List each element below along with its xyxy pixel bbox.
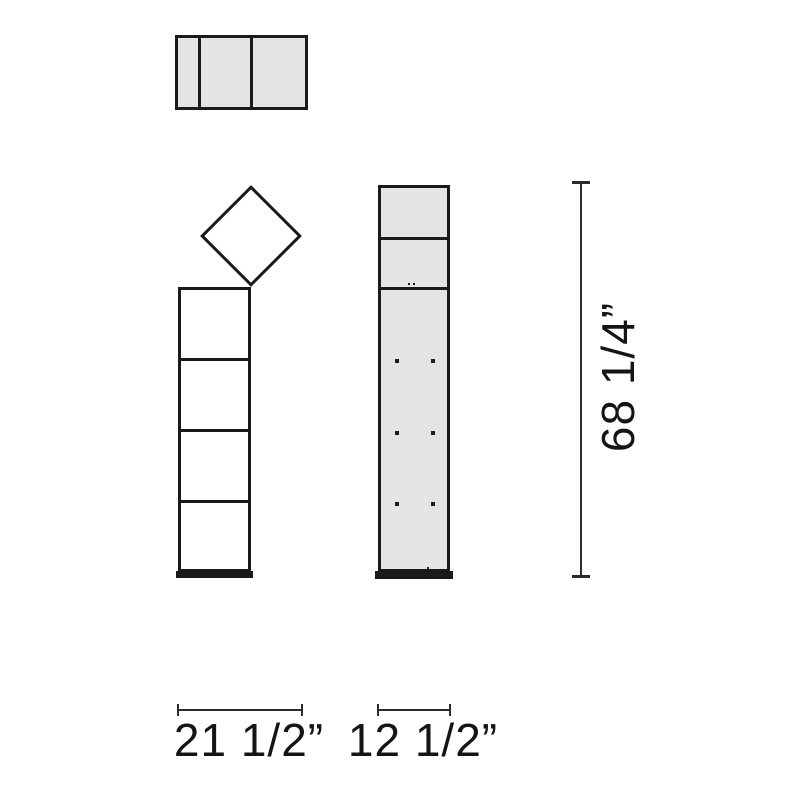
stack-divider	[181, 358, 248, 361]
cube-stack-outline	[178, 287, 251, 572]
height-dimension-line	[580, 182, 582, 578]
height-dimension-label: 68 1/4”	[595, 302, 641, 452]
hinge-dot	[408, 283, 410, 285]
front-width-dimension-line	[178, 709, 302, 711]
top-view-divider	[250, 38, 253, 107]
side-base-plinth	[375, 571, 453, 579]
peg-hole-dot	[431, 359, 435, 363]
peg-hole-dot	[395, 431, 399, 435]
dimension-tick	[572, 181, 590, 184]
side-width-dimension-label: 12 1/2”	[348, 717, 498, 763]
dimension-tick	[572, 575, 590, 578]
side-view-divider	[381, 287, 447, 290]
side-view-divider	[381, 237, 447, 240]
stack-divider	[181, 429, 248, 432]
hinge-dot	[413, 283, 415, 285]
top-view-outline	[175, 35, 308, 110]
peg-hole-dot	[431, 502, 435, 506]
peg-hole-dot	[395, 502, 399, 506]
peg-hole-dot	[427, 567, 429, 569]
tilted-cube	[200, 185, 302, 287]
peg-hole-dot	[395, 359, 399, 363]
front-width-dimension-label: 21 1/2”	[174, 717, 324, 763]
top-view-divider	[198, 38, 201, 107]
dimension-drawing: 68 1/4” 21 1/2” 12 1/2”	[0, 0, 800, 800]
peg-hole-dot	[431, 431, 435, 435]
front-base-plinth	[176, 571, 253, 578]
stack-divider	[181, 500, 248, 503]
side-view-outline	[378, 185, 450, 572]
side-width-dimension-line	[378, 709, 450, 711]
